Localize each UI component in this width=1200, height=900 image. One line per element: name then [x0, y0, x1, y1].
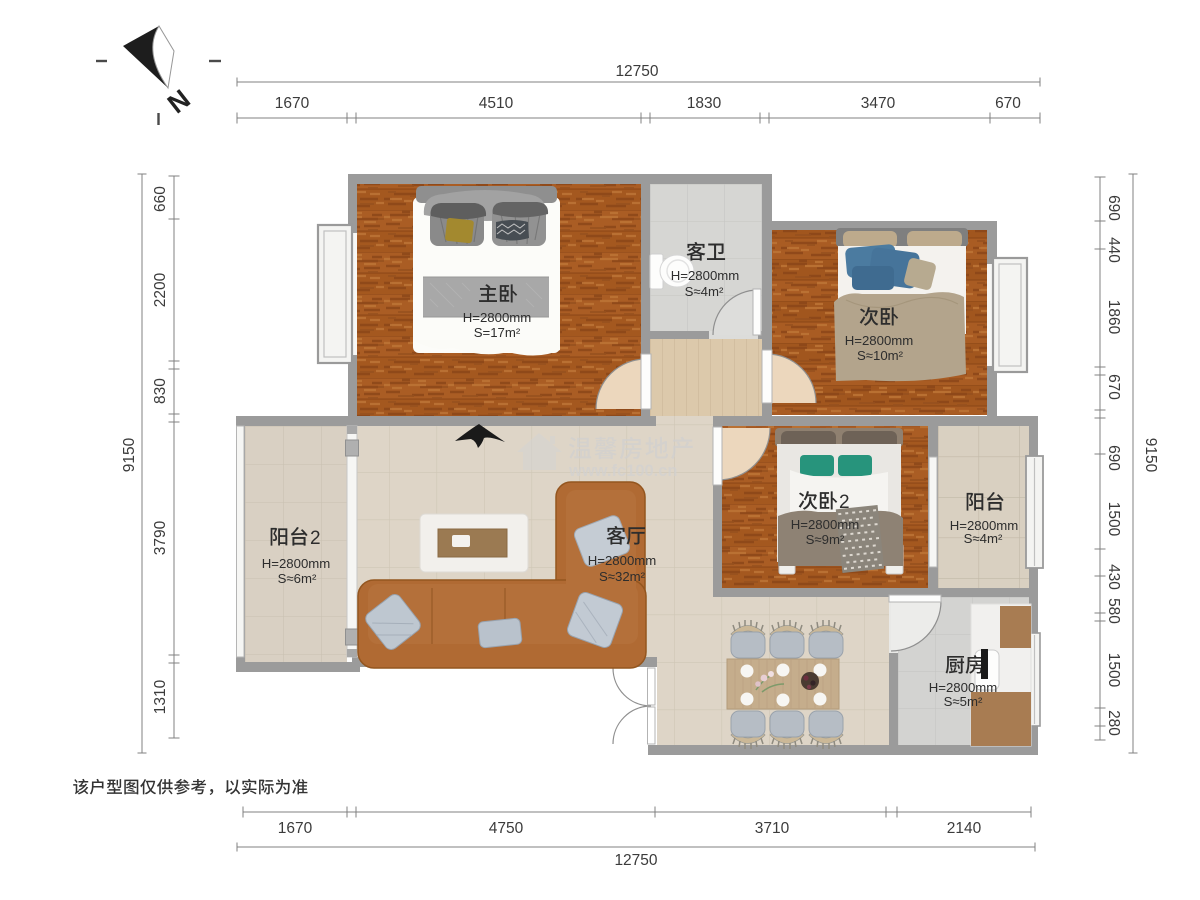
- svg-text:430: 430: [1105, 564, 1122, 590]
- svg-text:S≈4m²: S≈4m²: [685, 284, 724, 299]
- svg-text:1830: 1830: [687, 95, 722, 112]
- svg-text:1500: 1500: [1105, 502, 1122, 537]
- svg-text:S≈32m²: S≈32m²: [599, 569, 646, 584]
- svg-text:2200: 2200: [152, 272, 169, 307]
- svg-text:830: 830: [152, 378, 169, 404]
- svg-text:S≈9m²: S≈9m²: [806, 532, 845, 547]
- svg-text:2: 2: [310, 528, 321, 549]
- svg-text:580: 580: [1105, 598, 1122, 624]
- svg-text:670: 670: [995, 95, 1021, 112]
- svg-text:660: 660: [152, 186, 169, 212]
- svg-text:1670: 1670: [275, 95, 310, 112]
- svg-text:1670: 1670: [278, 820, 313, 837]
- svg-text:H=2800mm: H=2800mm: [588, 553, 657, 568]
- svg-text:12750: 12750: [615, 63, 658, 80]
- svg-text:1500: 1500: [1105, 653, 1122, 688]
- svg-text:S≈4m²: S≈4m²: [964, 531, 1003, 546]
- svg-text:12750: 12750: [614, 852, 657, 869]
- svg-text:H=2800mm: H=2800mm: [463, 310, 532, 325]
- svg-text:1310: 1310: [152, 679, 169, 714]
- svg-text:H=2800mm: H=2800mm: [671, 268, 740, 283]
- svg-text:9150: 9150: [1142, 438, 1159, 473]
- svg-text:2: 2: [839, 492, 850, 513]
- svg-text:www.fc100.cn: www.fc100.cn: [568, 462, 678, 480]
- svg-text:1860: 1860: [1105, 300, 1122, 335]
- svg-text:S≈10m²: S≈10m²: [857, 348, 904, 363]
- svg-text:670: 670: [1105, 374, 1122, 400]
- svg-text:S≈6m²: S≈6m²: [278, 571, 317, 586]
- svg-text:3470: 3470: [861, 95, 896, 112]
- svg-text:H=2800mm: H=2800mm: [791, 517, 860, 532]
- svg-text:3710: 3710: [755, 820, 790, 837]
- svg-text:S≈5m²: S≈5m²: [944, 694, 983, 709]
- svg-text:H=2800mm: H=2800mm: [929, 680, 998, 695]
- svg-text:690: 690: [1105, 195, 1122, 221]
- svg-text:H=2800mm: H=2800mm: [262, 556, 331, 571]
- svg-text:2140: 2140: [947, 820, 982, 837]
- svg-text:4750: 4750: [489, 820, 524, 837]
- svg-text:9150: 9150: [121, 437, 138, 472]
- svg-text:280: 280: [1105, 710, 1122, 736]
- svg-text:4510: 4510: [479, 95, 514, 112]
- svg-text:S=17m²: S=17m²: [474, 325, 521, 340]
- svg-text:440: 440: [1105, 237, 1122, 263]
- svg-text:690: 690: [1105, 445, 1122, 471]
- svg-text:3790: 3790: [152, 520, 169, 555]
- svg-text:H=2800mm: H=2800mm: [845, 333, 914, 348]
